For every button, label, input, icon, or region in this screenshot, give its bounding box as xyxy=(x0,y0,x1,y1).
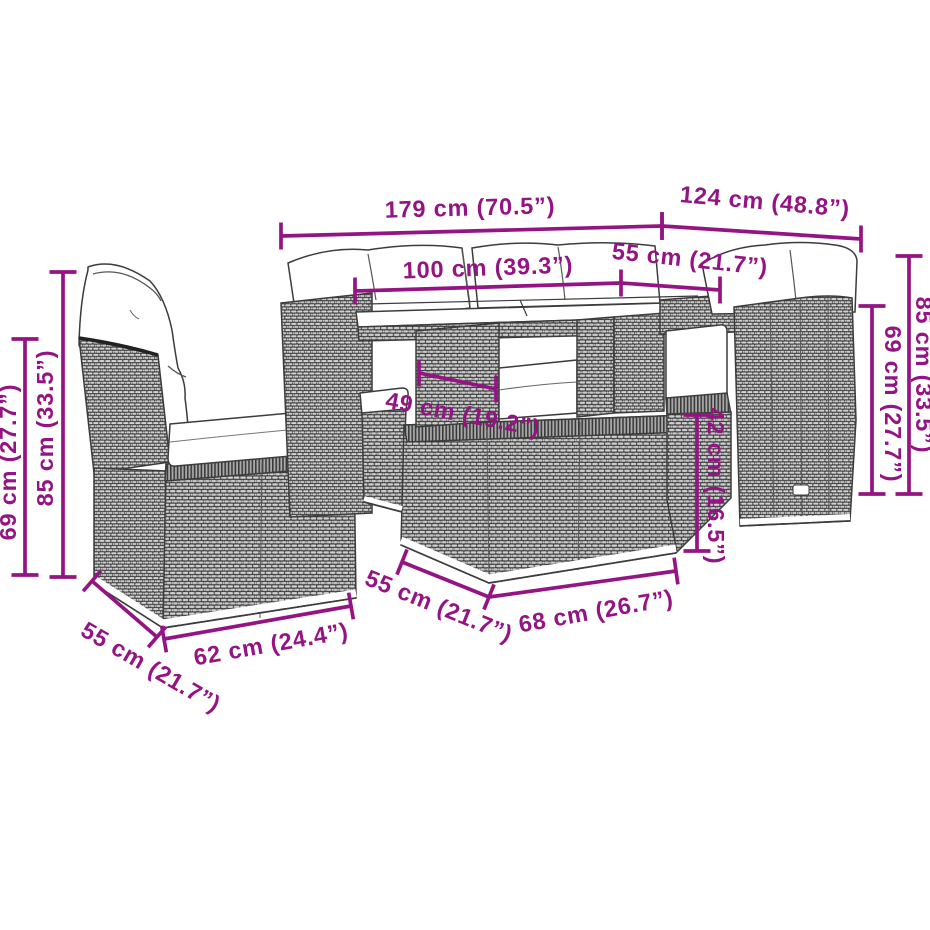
svg-text:85 cm (33.5”): 85 cm (33.5”) xyxy=(911,297,930,454)
svg-text:69 cm (27.7”): 69 cm (27.7”) xyxy=(0,384,21,541)
svg-text:42 cm (16.5”): 42 cm (16.5”) xyxy=(703,408,729,565)
svg-text:69 cm (27.7”): 69 cm (27.7”) xyxy=(880,326,906,483)
svg-text:85 cm (33.5”): 85 cm (33.5”) xyxy=(32,350,58,507)
svg-text:179 cm (70.5”): 179 cm (70.5”) xyxy=(384,192,555,222)
